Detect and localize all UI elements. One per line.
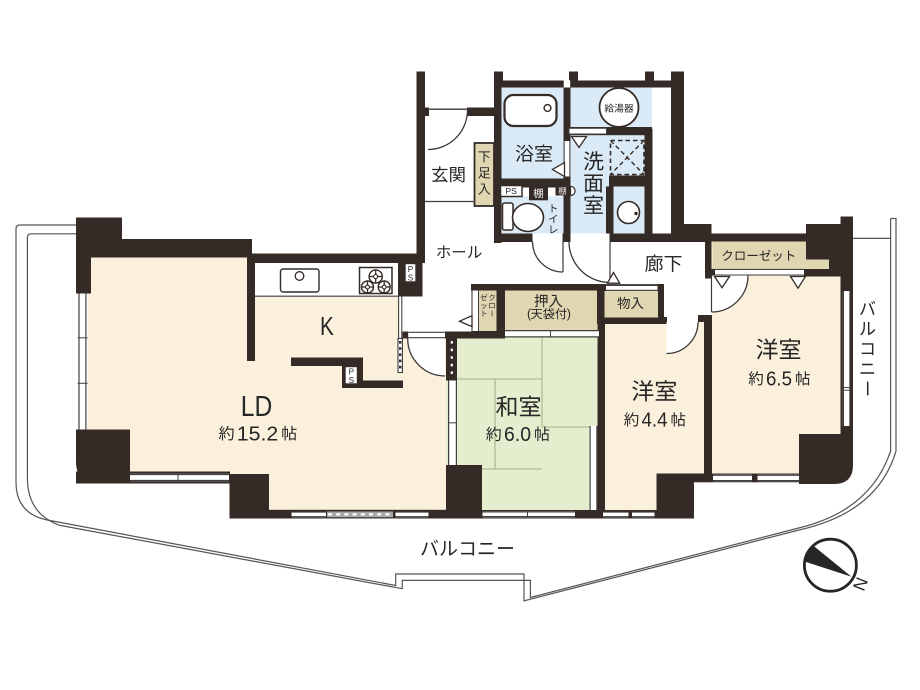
svg-text:4.4: 4.4 — [642, 410, 668, 432]
svg-text:LD: LD — [241, 391, 272, 423]
svg-text:P: P — [408, 265, 414, 274]
svg-text:K: K — [320, 313, 334, 341]
svg-text:6.0: 6.0 — [504, 424, 531, 446]
svg-text:PS: PS — [505, 186, 517, 196]
svg-text:6.5: 6.5 — [766, 369, 792, 391]
svg-text:15.2: 15.2 — [237, 423, 279, 446]
svg-text:): ) — [567, 307, 571, 321]
svg-text:S: S — [349, 376, 355, 385]
svg-text:P: P — [349, 367, 355, 376]
svg-text:S: S — [408, 274, 414, 283]
